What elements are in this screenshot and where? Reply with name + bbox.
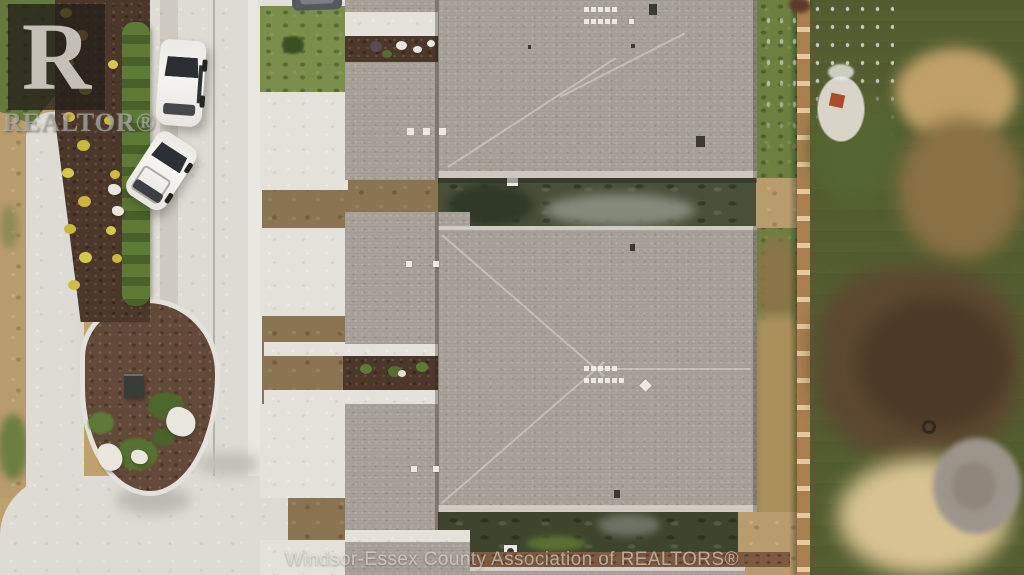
realtor-logo-letter: R — [22, 7, 91, 107]
house1-roof-garage-wing — [345, 62, 438, 180]
roof-vent — [629, 19, 634, 24]
white-wildflowers — [762, 10, 797, 160]
backyard-gray-patch — [545, 194, 695, 226]
front-lawn — [260, 6, 348, 92]
shrub — [382, 50, 392, 58]
house2-eave — [438, 226, 757, 230]
realtor-logo-watermark: R REALTOR® — [0, 0, 160, 145]
car-wheel — [199, 95, 205, 107]
driveway-slab — [260, 228, 348, 316]
yellow-flower — [106, 226, 116, 235]
roof-vent-row — [584, 19, 617, 24]
house2-roof-rear-wing — [345, 404, 438, 530]
yellow-flower — [110, 170, 120, 179]
roof-vent — [433, 261, 439, 267]
shrub — [416, 362, 428, 372]
red-marker-on-lid — [829, 93, 845, 109]
yellow-flower — [78, 196, 91, 207]
house2-eave — [438, 505, 757, 512]
roof-vent-dark — [630, 244, 635, 251]
roof-vent-dark — [614, 490, 620, 498]
roof-vent-dark — [649, 4, 657, 15]
house1-porch-roof — [345, 0, 438, 12]
roof-seam-shadow — [435, 0, 439, 180]
roof-vent — [411, 466, 417, 472]
roadside-weeds — [0, 205, 18, 249]
white-flowers — [398, 370, 406, 377]
roof-vent — [433, 466, 439, 472]
front-walkway — [264, 342, 440, 356]
utility-box — [124, 374, 143, 398]
house1-planting-bed — [345, 36, 438, 62]
wood-fence — [797, 0, 810, 575]
yellow-flower — [112, 254, 122, 263]
car-rear-window — [163, 103, 196, 116]
car-windshield — [164, 56, 199, 78]
house3-roof-main — [438, 571, 745, 575]
white-flowers — [828, 64, 854, 80]
white-flowers — [396, 41, 407, 50]
white-flowers — [427, 40, 435, 47]
roof-vent-row — [584, 7, 617, 12]
house1-roof-main — [438, 0, 757, 178]
aerial-photo-scene: R REALTOR® Windsor-Essex County Associat… — [0, 0, 1024, 575]
roof-vent-row — [584, 366, 617, 371]
driveway-slab — [260, 404, 348, 498]
house3-front-walk — [345, 530, 470, 542]
dark-ring-object — [922, 420, 936, 434]
parked-car-white-1 — [155, 39, 207, 128]
white-flowers — [413, 46, 422, 53]
roof-ridge-line — [600, 368, 750, 370]
yellow-flower — [79, 252, 92, 263]
driveway-slab — [260, 92, 348, 190]
dirt-transition-patch — [898, 118, 1024, 260]
septic-lid — [817, 76, 865, 142]
dark-soil-core — [858, 298, 1010, 430]
roof-vent-row — [584, 378, 624, 383]
house1-eave — [438, 171, 757, 178]
roof-vent-dark — [528, 45, 531, 49]
roof-vent-row — [407, 128, 448, 135]
lawn-bush — [282, 36, 304, 54]
roof-edge-shadow — [753, 226, 757, 512]
pavement-stain — [196, 452, 260, 476]
car-windshield — [151, 141, 189, 174]
roof-edge-shadow — [753, 0, 757, 178]
realtor-wordmark: REALTOR® — [3, 108, 153, 138]
house1-front-walk — [345, 12, 438, 36]
house1-eave-shadow — [438, 178, 757, 183]
roof-vent — [406, 261, 412, 267]
roof-seam-shadow — [435, 212, 439, 530]
realtor-logo-icon: R — [8, 4, 105, 110]
shrub — [88, 412, 114, 434]
purple-shrub — [370, 41, 382, 52]
car-roof-glint — [300, 0, 334, 5]
car-wheel — [202, 59, 208, 71]
yellow-flower — [64, 224, 76, 234]
car-at-top-edge — [292, 0, 343, 11]
gravel-mound-core — [952, 462, 996, 510]
yellow-flower — [62, 168, 74, 178]
shrub — [360, 364, 372, 374]
roof-vent-dark — [696, 136, 705, 147]
backyard-gray-patch — [598, 514, 660, 536]
limestone-rock — [112, 206, 124, 216]
footer-watermark: Windsor-Essex County Association of REAL… — [0, 549, 1024, 571]
limestone-rock — [108, 184, 121, 195]
yellow-flower — [68, 280, 80, 290]
roof-vent-dark — [631, 44, 635, 48]
front-walkway — [264, 390, 440, 404]
